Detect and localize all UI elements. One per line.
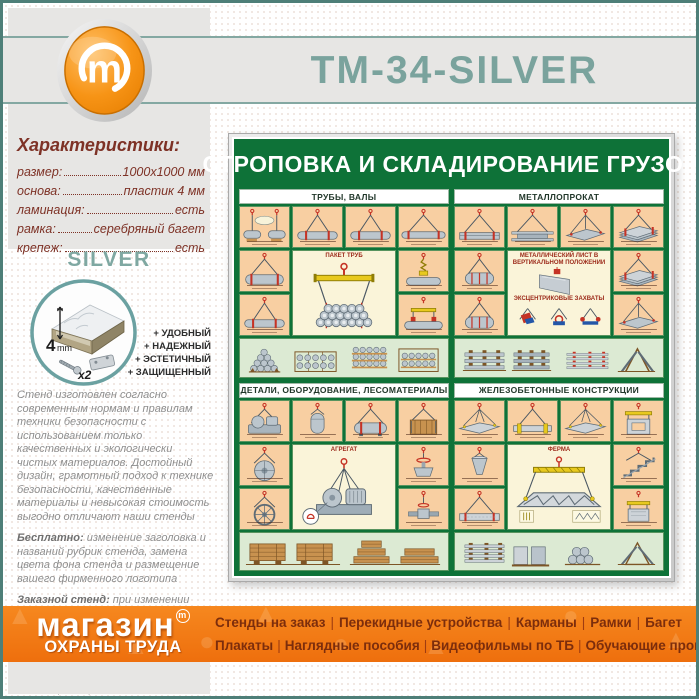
- poster-cell-slab: [560, 400, 611, 442]
- quadrant-title: ТРУБЫ, ВАЛЫ: [239, 189, 449, 204]
- paragraph-text: Стенд изготовлен согласно современным но…: [17, 389, 213, 523]
- cell-caption-lines: [513, 434, 552, 439]
- cell-caption-lines: [619, 434, 658, 439]
- poster-cell-pipe-two-hooks: [239, 206, 290, 248]
- quadrant-top-row: [454, 400, 664, 442]
- menu-item[interactable]: Видеофильмы по ТБ: [431, 638, 574, 653]
- quadrant-left-column: [454, 444, 505, 530]
- poster-cell-tank: [345, 400, 396, 442]
- poster-cell-valve2: [398, 488, 449, 530]
- footer-banner: ▲● ▲▲ ●▲ ●▲ магазинm ОХРАНЫ ТРУДА Стенды…: [3, 606, 696, 662]
- cell-caption-lines: [619, 285, 658, 290]
- menu-item[interactable]: Перекидные устройства: [339, 615, 502, 630]
- dotted-leader: [58, 232, 92, 233]
- cell-caption-lines: [351, 241, 390, 246]
- poster-quadrant: ЖЕЛЕЗОБЕТОННЫЕ КОНСТРУКЦИИФЕРМА: [454, 383, 664, 572]
- characteristic-label: ламинация:: [17, 201, 85, 220]
- feature-list: + УДОБНЫЙ+ НАДЕЖНЫЙ+ ЭСТЕТИЧНЫЙ+ ЗАЩИЩЕН…: [121, 327, 211, 379]
- quadrant-middle: ПАКЕТ ТРУБ: [239, 250, 449, 336]
- storage-diagram-stack-columns: [561, 535, 659, 569]
- menu-separator: |: [574, 638, 586, 653]
- quadrant-right-column: [613, 250, 664, 336]
- poster-cell-sheet-pack: [613, 250, 664, 292]
- poster-cell-motor: [239, 400, 290, 442]
- paragraph-bold-text: Заказной стенд:: [17, 594, 110, 606]
- poster-quadrants: ТРУБЫ, ВАЛЫПАКЕТ ТРУБ МЕТАЛЛОПРОКАТМЕТАЛ…: [234, 189, 669, 576]
- menu-item[interactable]: Багет: [645, 615, 682, 630]
- bottom-gray-strip: [8, 662, 210, 694]
- poster-quadrant: ДЕТАЛИ, ОБОРУДОВАНИЕ, ЛЕСОМАТЕРИАЛЫАГРЕГ…: [239, 383, 449, 572]
- characteristic-label: рамка:: [17, 220, 56, 239]
- quadrant-middle: АГРЕГАТ: [239, 444, 449, 530]
- poster-cell-sheet-flat: [560, 206, 611, 248]
- quadrant-left-column: [454, 250, 505, 336]
- characteristic-label: основа:: [17, 182, 61, 201]
- menu-item[interactable]: Карманы: [516, 615, 577, 630]
- cell-caption-lines: [619, 522, 658, 527]
- characteristics-rows: размер:1000х1000 ммоснова:пластик 4 ммла…: [17, 163, 205, 258]
- dotted-leader: [87, 213, 173, 214]
- cell-caption-lines: [245, 285, 284, 290]
- page-title: ТМ-34-SILVER: [218, 49, 691, 93]
- poster-cell-pipe: [239, 294, 290, 336]
- menu-item[interactable]: Рамки: [590, 615, 631, 630]
- footer-menus: Стенды на заказ|Перекидные устройства|Ка…: [215, 606, 682, 662]
- storage-diagram-stack-timber: [244, 535, 342, 569]
- characteristic-row: основа:пластик 4 мм: [17, 182, 205, 201]
- menu-item[interactable]: Плакаты: [215, 638, 273, 653]
- cell-caption-lines: [298, 434, 337, 439]
- poster-cell-stairs: [613, 444, 664, 486]
- store-logo[interactable]: магазинm ОХРАНЫ ТРУДА: [17, 609, 209, 655]
- cell-caption-lines: [245, 329, 284, 334]
- menu-separator: |: [633, 615, 645, 630]
- cell-caption-lines: [351, 434, 390, 439]
- center-cell-illustration: [510, 454, 608, 526]
- center-cell-illustration: [295, 260, 393, 332]
- quadrant-right-column: [398, 444, 449, 530]
- poster-cell-crate: [398, 400, 449, 442]
- series-label: SILVER: [8, 248, 210, 272]
- cell-caption-lines: [619, 241, 658, 246]
- menu-separator: |: [273, 638, 285, 653]
- quadrant-storage-band: [454, 532, 664, 572]
- feature-item: + НАДЕЖНЫЙ: [121, 340, 211, 353]
- poster-title: СТРОПОВКА И СКЛАДИРОВАНИЕ ГРУЗОВ: [234, 139, 669, 189]
- menu-separator: |: [420, 638, 432, 653]
- menu-item[interactable]: Наглядные пособия: [285, 638, 420, 653]
- quadrant-storage-band: [454, 338, 664, 378]
- center-cell-label: МЕТАЛЛИЧЕСКИЙ ЛИСТ В ВЕРТИКАЛЬНОМ ПОЛОЖЕ…: [510, 253, 608, 267]
- poster-cell-disc: [239, 444, 290, 486]
- menu-separator: |: [503, 615, 515, 630]
- quadrant-storage-band: [239, 338, 449, 378]
- quadrant-right-column: [398, 250, 449, 336]
- feature-item: + УДОБНЫЙ: [121, 327, 211, 340]
- characteristic-row: ламинация:есть: [17, 201, 205, 220]
- poster-cell-pipe-long: [398, 206, 449, 248]
- poster-cell-sheet-pack: [613, 206, 664, 248]
- cell-caption-lines: [460, 478, 499, 483]
- characteristic-value: есть: [175, 201, 205, 220]
- cell-caption-lines: [566, 241, 605, 246]
- cell-caption-lines: [460, 522, 499, 527]
- cell-caption-lines: [245, 241, 284, 246]
- cell-caption-lines: [619, 478, 658, 483]
- thickness-number: 4: [46, 336, 56, 355]
- menu-item[interactable]: Обучающие программы: [585, 638, 696, 653]
- poster-cell-flywheel: [239, 488, 290, 530]
- brand-m-logo-icon: m: [55, 17, 154, 125]
- poster-cell-slab: [454, 400, 505, 442]
- quadrant-title: ДЕТАЛИ, ОБОРУДОВАНИЕ, ЛЕСОМАТЕРИАЛЫ: [239, 383, 449, 398]
- storage-diagram-stack-slabs: [459, 535, 557, 569]
- quadrant-left-column: [239, 250, 290, 336]
- storage-diagram-stack-pallets: [346, 535, 444, 569]
- cell-caption-lines: [404, 478, 443, 483]
- characteristics-heading: Характеристики:: [17, 135, 205, 156]
- quadrant-center-cell: МЕТАЛЛИЧЕСКИЙ ЛИСТ В ВЕРТИКАЛЬНОМ ПОЛОЖЕ…: [507, 250, 611, 336]
- quadrant-top-row: [239, 400, 449, 442]
- description-paragraph: Стенд изготовлен согласно современным но…: [17, 389, 215, 524]
- storage-diagram-stack-pipes: [244, 341, 342, 375]
- quantity-label: x2: [77, 368, 92, 382]
- storage-diagram-stack-pipes-rack: [346, 341, 444, 375]
- dotted-leader: [63, 194, 122, 195]
- cell-caption-lines: [513, 241, 552, 246]
- poster-quadrant: МЕТАЛЛОПРОКАТМЕТАЛЛИЧЕСКИЙ ЛИСТ В ВЕРТИК…: [454, 189, 664, 378]
- poster-cell-ibeam: [507, 206, 558, 248]
- poster-cell-panel-traverse: [613, 400, 664, 442]
- quadrant-title: МЕТАЛЛОПРОКАТ: [454, 189, 664, 204]
- poster-cell-pipe: [292, 206, 343, 248]
- center-cell-illustration-2: [510, 303, 608, 332]
- poster-cell-coil: [454, 294, 505, 336]
- cell-caption-lines: [619, 329, 658, 334]
- poster-cell-chain-grab: [398, 250, 449, 292]
- quadrant-center-cell: ПАКЕТ ТРУБ: [292, 250, 396, 336]
- quadrant-middle: МЕТАЛЛИЧЕСКИЙ ЛИСТ В ВЕРТИКАЛЬНОМ ПОЛОЖЕ…: [454, 250, 664, 336]
- cell-caption-lines: [404, 434, 443, 439]
- quadrant-middle: ФЕРМА: [454, 444, 664, 530]
- poster-cell-pipe-clamps: [398, 294, 449, 336]
- menu-separator: |: [326, 615, 338, 630]
- quadrant-top-row: [454, 206, 664, 248]
- dotted-leader: [64, 175, 120, 176]
- characteristic-label: размер:: [17, 163, 62, 182]
- cell-caption-lines: [404, 522, 443, 527]
- quadrant-center-cell: ФЕРМА: [507, 444, 611, 530]
- paragraph-bold-text: Бесплатно:: [17, 532, 84, 544]
- cell-caption-lines: [404, 241, 443, 246]
- menu-item[interactable]: Стенды на заказ: [215, 615, 325, 630]
- quadrant-center-cell: АГРЕГАТ: [292, 444, 396, 530]
- poster-cell-valve: [398, 444, 449, 486]
- poster-quadrant: ТРУБЫ, ВАЛЫПАКЕТ ТРУБ: [239, 189, 449, 378]
- menu-row-2: Плакаты|Наглядные пособия|Видеофильмы по…: [215, 638, 682, 653]
- cell-caption-lines: [460, 434, 499, 439]
- store-logo-line2: ОХРАНЫ ТРУДА: [17, 640, 209, 655]
- characteristic-value: 1000х1000 мм: [123, 163, 205, 182]
- poster-cell-beam-concrete: [454, 488, 505, 530]
- cell-caption-lines: [566, 434, 605, 439]
- quadrant-title: ЖЕЛЕЗОБЕТОННЫЕ КОНСТРУКЦИИ: [454, 383, 664, 398]
- poster-framed: СТРОПОВКА И СКЛАДИРОВАНИЕ ГРУЗОВ ТРУБЫ, …: [228, 133, 675, 582]
- quadrant-right-column: [613, 444, 664, 530]
- poster-cell-block-traverse: [613, 488, 664, 530]
- cell-caption-lines: [404, 329, 443, 334]
- poster-cell-coil: [454, 250, 505, 292]
- trademark-m-icon: m: [176, 609, 190, 623]
- center-cell-label: АГРЕГАТ: [331, 447, 357, 454]
- poster-cell-channel: [454, 206, 505, 248]
- cell-caption-lines: [404, 285, 443, 290]
- center-cell-illustration: [295, 454, 393, 526]
- cell-caption-lines: [245, 478, 284, 483]
- cell-caption-lines: [245, 434, 284, 439]
- cell-caption-lines: [460, 285, 499, 290]
- poster-cell-bucket: [454, 444, 505, 486]
- cell-caption-lines: [460, 241, 499, 246]
- center-cell-illustration: [510, 267, 608, 296]
- feature-item: + ЭСТЕТИЧНЫЙ: [121, 353, 211, 366]
- description-paragraph: Бесплатно: изменение заголовка и названи…: [17, 532, 215, 586]
- center-cell-label: ФЕРМА: [548, 447, 570, 454]
- quadrant-left-column: [239, 444, 290, 530]
- characteristics-panel: Характеристики: размер:1000х1000 ммоснов…: [17, 135, 205, 258]
- cell-caption-lines: [298, 241, 337, 246]
- menu-separator: |: [578, 615, 590, 630]
- storage-diagram-stack-beams: [459, 341, 557, 375]
- characteristic-value: серебряный багет: [94, 220, 205, 239]
- thickness-unit: mm: [57, 343, 72, 353]
- cell-caption-lines: [460, 329, 499, 334]
- poster-canvas: СТРОПОВКА И СКЛАДИРОВАНИЕ ГРУЗОВ ТРУБЫ, …: [232, 137, 671, 578]
- characteristic-row: рамка:серебряный багет: [17, 220, 205, 239]
- product-page: ТМ-34-SILVER m Характеристики: размер:10…: [0, 0, 699, 699]
- quadrant-storage-band: [239, 532, 449, 572]
- characteristic-row: размер:1000х1000 мм: [17, 163, 205, 182]
- storage-diagram-stack-sheets: [561, 341, 659, 375]
- poster-cell-vessel: [292, 400, 343, 442]
- svg-text:m: m: [87, 47, 122, 91]
- poster-cell-pipe-wide: [239, 250, 290, 292]
- quadrant-top-row: [239, 206, 449, 248]
- center-cell-label: ПАКЕТ ТРУБ: [325, 253, 362, 260]
- feature-item: + ЗАЩИЩЕННЫЙ: [121, 366, 211, 379]
- cell-caption-lines: [245, 522, 284, 527]
- poster-cell-sheet-flat: [613, 294, 664, 336]
- center-cell-sublabel: ЭКСЦЕНТРИКОВЫЕ ЗАХВАТЫ: [514, 296, 605, 303]
- characteristic-value: пластик 4 мм: [124, 182, 205, 201]
- poster-cell-slab-beam: [507, 400, 558, 442]
- poster-cell-pipe: [345, 206, 396, 248]
- menu-row-1: Стенды на заказ|Перекидные устройства|Ка…: [215, 615, 682, 630]
